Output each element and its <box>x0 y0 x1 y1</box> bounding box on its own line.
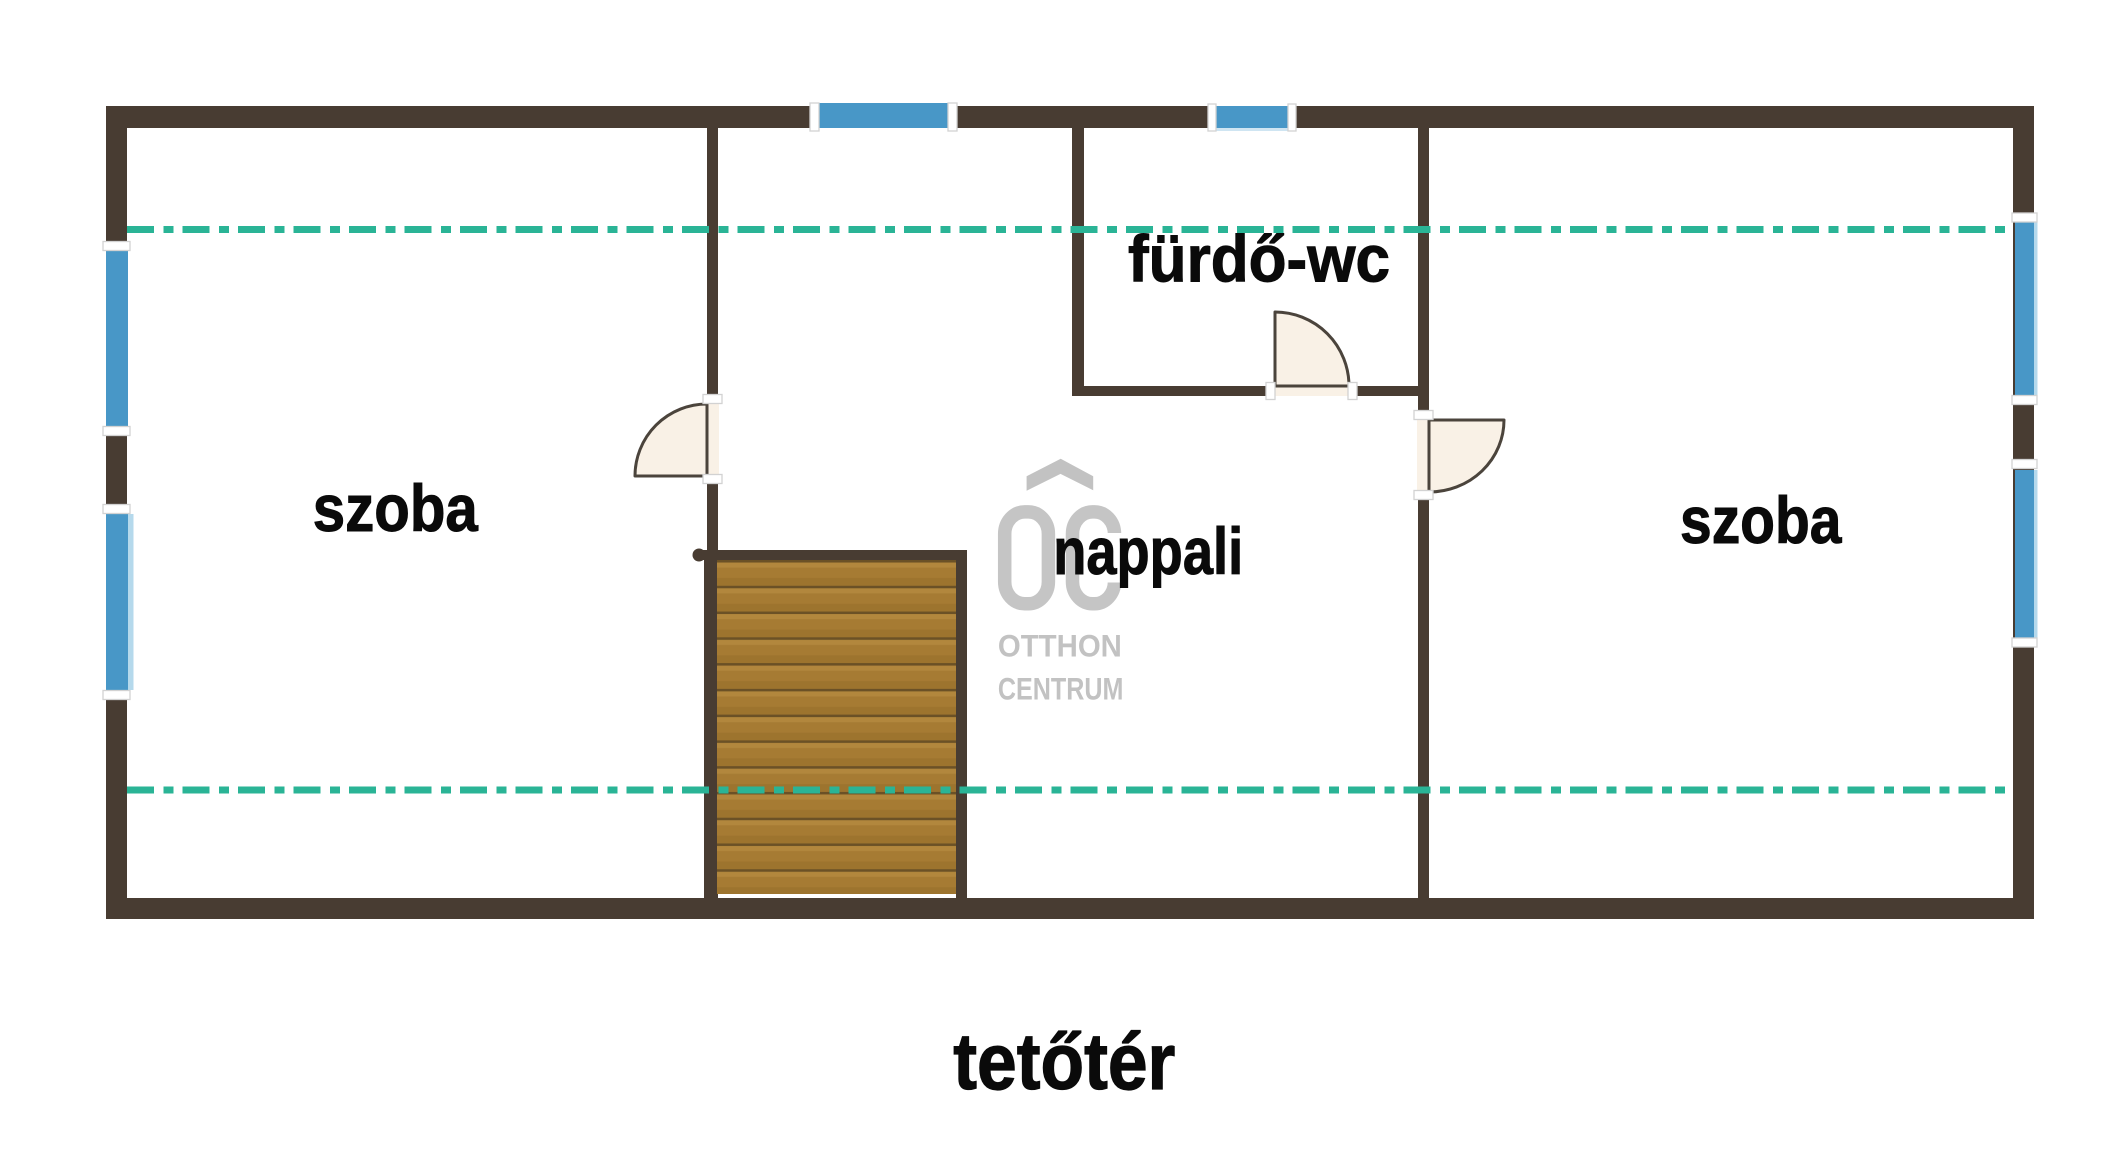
svg-text:tetőtér: tetőtér <box>953 1017 1175 1106</box>
svg-text:szoba: szoba <box>313 471 479 545</box>
svg-text:nappali: nappali <box>1053 514 1243 588</box>
svg-text:CENTRUM: CENTRUM <box>998 670 1124 706</box>
svg-text:OTTHON: OTTHON <box>998 628 1122 664</box>
svg-text:szoba: szoba <box>1680 483 1843 557</box>
svg-text:fürdő-wc: fürdő-wc <box>1128 221 1390 295</box>
